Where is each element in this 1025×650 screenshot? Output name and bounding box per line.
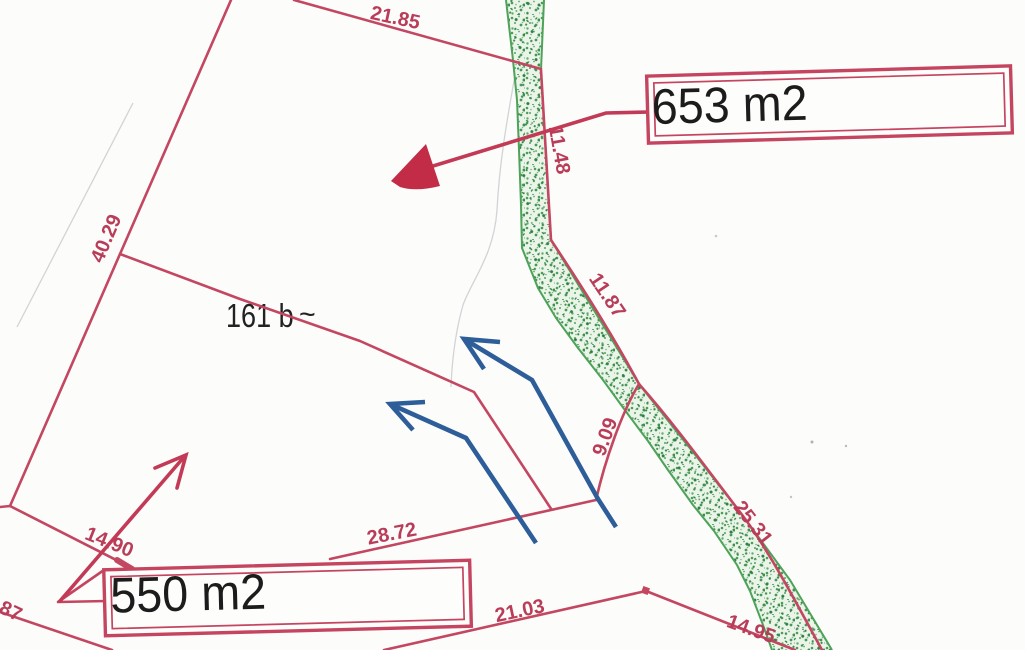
svg-text:550 m2: 550 m2 <box>110 564 267 624</box>
svg-text:653 m2: 653 m2 <box>651 75 808 135</box>
svg-text:161 b: 161 b <box>226 299 294 335</box>
svg-text:~: ~ <box>299 298 316 331</box>
